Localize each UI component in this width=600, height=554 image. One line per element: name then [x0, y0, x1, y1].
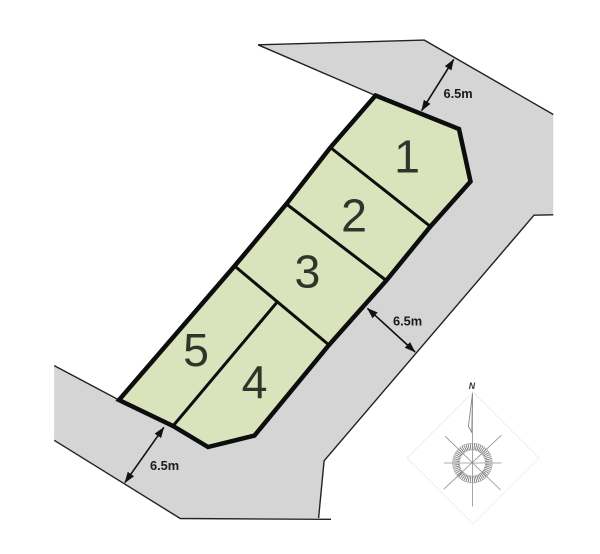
svg-text:6.5m: 6.5m	[150, 458, 179, 473]
svg-text:2: 2	[341, 190, 367, 242]
svg-text:N: N	[469, 381, 476, 391]
svg-text:1: 1	[394, 131, 420, 183]
svg-text:6.5m: 6.5m	[444, 86, 473, 101]
svg-text:6.5m: 6.5m	[393, 314, 422, 329]
svg-text:4: 4	[242, 356, 268, 408]
svg-text:3: 3	[294, 246, 320, 298]
svg-text:5: 5	[183, 324, 209, 376]
